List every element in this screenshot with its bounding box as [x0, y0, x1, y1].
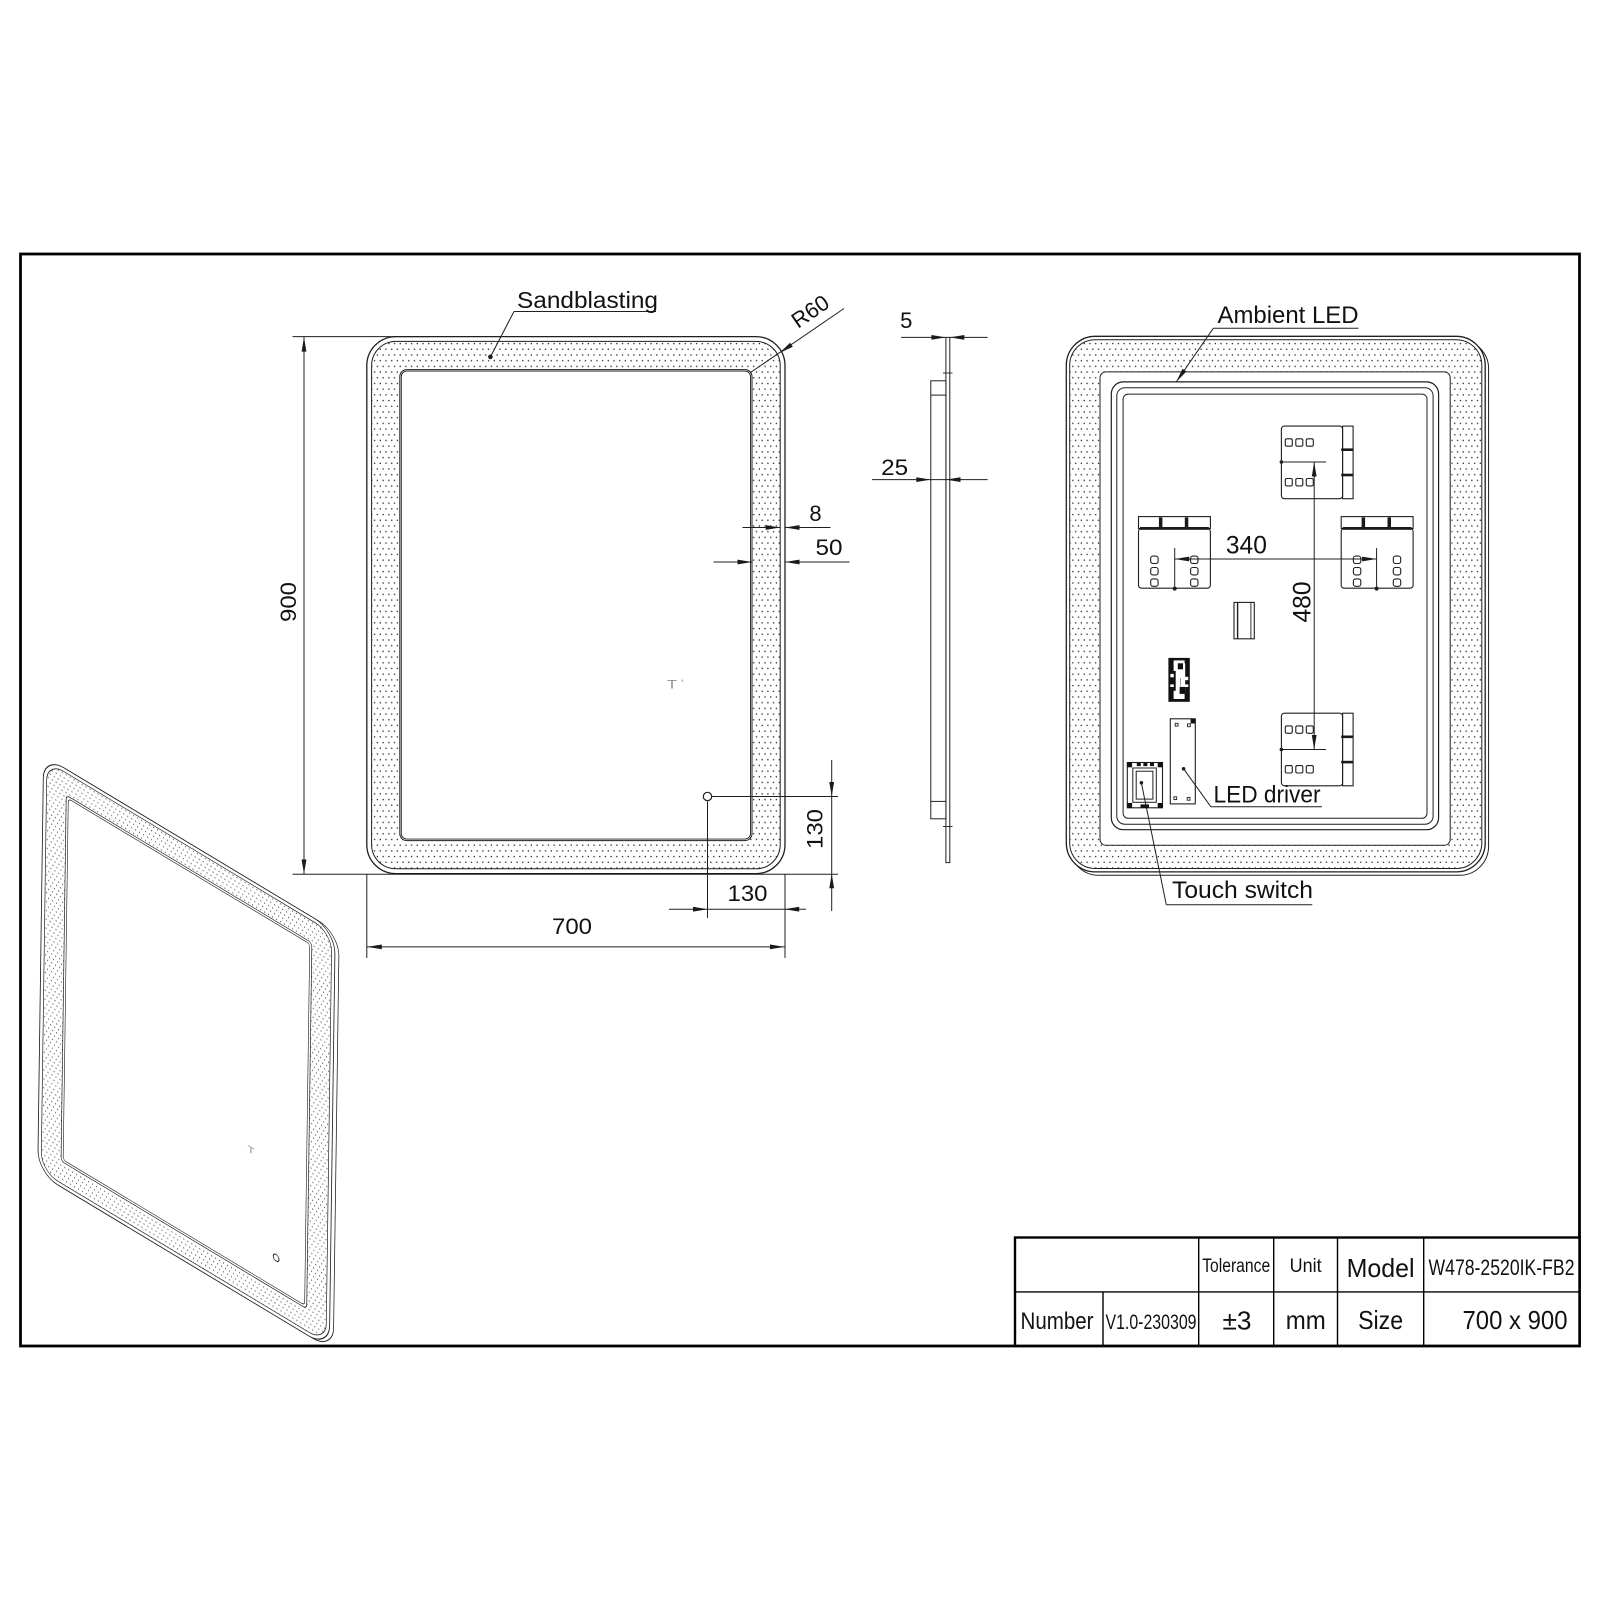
svg-text:LED driver: LED driver	[1214, 782, 1321, 809]
svg-text:mm: mm	[1286, 1305, 1326, 1335]
svg-text:Model: Model	[1347, 1253, 1415, 1283]
svg-text:Touch switch: Touch switch	[1172, 877, 1313, 904]
svg-text:T: T	[667, 678, 678, 692]
svg-text:Number: Number	[1021, 1308, 1094, 1335]
svg-text:900: 900	[276, 582, 301, 622]
svg-text:Tolerance: Tolerance	[1202, 1256, 1270, 1277]
svg-text:340: 340	[1226, 532, 1267, 560]
svg-text:Unit: Unit	[1290, 1256, 1323, 1277]
svg-text:±3: ±3	[1223, 1306, 1252, 1336]
svg-text:700: 700	[552, 914, 592, 939]
svg-text:V1.0-230309: V1.0-230309	[1106, 1311, 1197, 1334]
svg-text:50: 50	[816, 535, 843, 560]
svg-text:W478-2520IK-FB2: W478-2520IK-FB2	[1429, 1255, 1575, 1280]
svg-text:Size: Size	[1358, 1305, 1403, 1335]
svg-text:5: 5	[900, 308, 912, 333]
svg-text:700 x 900: 700 x 900	[1463, 1305, 1568, 1335]
svg-text:25: 25	[881, 455, 908, 480]
svg-text:480: 480	[1289, 582, 1317, 623]
svg-text:Sandblasting: Sandblasting	[517, 287, 658, 313]
svg-text:Ambient LED: Ambient LED	[1218, 302, 1359, 329]
svg-text:130: 130	[803, 809, 828, 849]
svg-text:130: 130	[728, 881, 768, 906]
svg-text:8: 8	[809, 501, 821, 526]
